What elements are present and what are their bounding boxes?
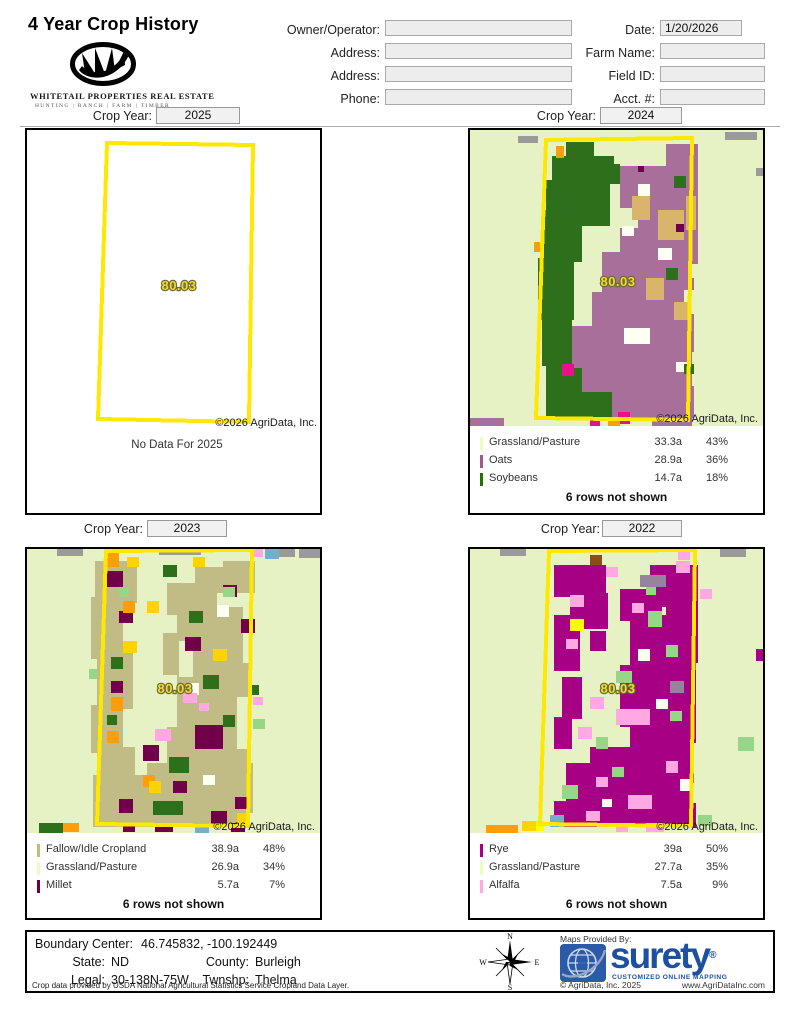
legend-label: Fallow/Idle Cropland	[46, 843, 146, 855]
surety-website[interactable]: www.AgriDataInc.com	[625, 980, 765, 990]
legend-label: Grassland/Pasture	[489, 861, 580, 873]
legend-swatch	[480, 473, 483, 486]
legend-percent: 36%	[686, 454, 728, 466]
date-input[interactable]	[660, 20, 742, 36]
crop-year-label-2024: Crop Year:	[494, 109, 596, 123]
legend-percent: 18%	[686, 472, 728, 484]
compass-s: S	[508, 983, 512, 990]
legend-swatch	[480, 437, 483, 450]
crop-map-2023: 80.03 ©2026 AgriData, Inc.	[27, 549, 320, 833]
report-footer-box: Boundary Center: 46.745832, -100.192449 …	[25, 930, 775, 993]
address2-label: Address:	[242, 69, 380, 83]
field-id-label: Field ID:	[517, 69, 655, 83]
phone-label: Phone:	[242, 92, 380, 106]
parcel-acreage-label: 80.03	[600, 681, 635, 696]
legend-acres: 38.9a	[167, 843, 239, 855]
logo-name: WHITETAIL PROPERTIES REAL ESTATE	[30, 91, 175, 101]
legend-percent: 34%	[243, 861, 285, 873]
legend-swatch	[37, 862, 40, 875]
compass-w: W	[479, 958, 487, 967]
panel-2022: 80.03 ©2026 AgriData, Inc. Rye 39a 50% G…	[468, 547, 765, 920]
crop-year-label-2022: Crop Year:	[498, 522, 600, 536]
legend-acres: 7.5a	[610, 879, 682, 891]
whitetail-logo: WHITETAIL PROPERTIES REAL ESTATE HUNTING…	[30, 42, 175, 109]
acct-label: Acct. #:	[517, 92, 655, 106]
owner-operator-label: Owner/Operator:	[242, 23, 380, 37]
map-copyright: ©2026 AgriData, Inc.	[213, 821, 315, 833]
parcel-acreage-label: 80.03	[157, 681, 192, 696]
farm-name-label: Farm Name:	[517, 46, 655, 60]
legend-percent: 50%	[686, 843, 728, 855]
legend-swatch	[480, 455, 483, 468]
legend-2022: Rye 39a 50% Grassland/Pasture 27.7a 35% …	[470, 833, 763, 918]
legend-row: Grassland/Pasture 27.7a 35%	[470, 861, 763, 877]
report-title: 4 Year Crop History	[28, 14, 199, 35]
legend-label: Rye	[489, 843, 509, 855]
panel-2023: 80.03 ©2026 AgriData, Inc. Fallow/Idle C…	[25, 547, 322, 920]
legend-row: Fallow/Idle Cropland 38.9a 48%	[27, 843, 320, 859]
state-label: State:	[35, 955, 105, 969]
data-source-note: Crop data provided by USDA National Agri…	[32, 981, 349, 990]
legend-acres: 33.3a	[610, 436, 682, 448]
legend-percent: 35%	[686, 861, 728, 873]
legend-percent: 7%	[243, 879, 285, 891]
header-divider	[20, 126, 780, 127]
legend-2023: Fallow/Idle Cropland 38.9a 48% Grassland…	[27, 833, 320, 918]
legend-row: Millet 5.7a 7%	[27, 879, 320, 895]
legend-row: Grassland/Pasture 33.3a 43%	[470, 436, 763, 452]
crop-year-label-2023: Crop Year:	[41, 522, 143, 536]
boundary-center-value: 46.745832, -100.192449	[141, 937, 277, 951]
legend-label: Soybeans	[489, 472, 538, 484]
rows-not-shown: 6 rows not shown	[470, 490, 763, 504]
parcel-acreage-label: 80.03	[161, 278, 196, 293]
legend-row: Alfalfa 7.5a 9%	[470, 879, 763, 895]
legend-acres: 28.9a	[610, 454, 682, 466]
crop-map-2022: 80.03 ©2026 AgriData, Inc.	[470, 549, 763, 833]
legend-percent: 43%	[686, 436, 728, 448]
acct-input[interactable]	[660, 89, 765, 105]
legend-row: Grassland/Pasture 26.9a 34%	[27, 861, 320, 877]
legend-acres: 5.7a	[167, 879, 239, 891]
parcel-acreage-label: 80.03	[600, 274, 635, 289]
legend-acres: 27.7a	[610, 861, 682, 873]
legend-label: Grassland/Pasture	[489, 436, 580, 448]
map-copyright: ©2026 AgriData, Inc.	[656, 413, 758, 425]
panel-2024: 80.03 ©2026 AgriData, Inc. Grassland/Pas…	[468, 128, 765, 515]
legend-label: Oats	[489, 454, 512, 466]
county-value: Burleigh	[255, 955, 301, 969]
legend-acres: 14.7a	[610, 472, 682, 484]
legend-label: Millet	[46, 879, 72, 891]
crop-map-2024: 80.03 ©2026 AgriData, Inc.	[470, 130, 763, 426]
crop-year-label-2025: Crop Year:	[50, 109, 152, 123]
surety-reg-mark: ®	[709, 950, 714, 961]
farm-name-input[interactable]	[660, 43, 765, 59]
rows-not-shown: 6 rows not shown	[27, 897, 320, 911]
surety-brand: surety®	[610, 939, 714, 973]
legend-swatch	[37, 880, 40, 893]
panel-2025: 80.03 ©2026 AgriData, Inc. No Data For 2…	[25, 128, 322, 515]
map-copyright: ©2026 AgriData, Inc.	[656, 821, 758, 833]
crop-year-input-2024[interactable]: 2024	[600, 107, 682, 124]
compass-n: N	[507, 933, 513, 941]
legend-row: Rye 39a 50%	[470, 843, 763, 859]
boundary-center-label: Boundary Center:	[35, 937, 133, 951]
legend-row: Oats 28.9a 36%	[470, 454, 763, 470]
legend-2024: Grassland/Pasture 33.3a 43% Oats 28.9a 3…	[470, 426, 763, 513]
no-data-text: No Data For 2025	[131, 439, 222, 451]
surety-globe-icon	[560, 944, 606, 982]
surety-brand-text: surety	[610, 935, 709, 976]
legend-swatch	[37, 844, 40, 857]
date-label: Date:	[517, 23, 655, 37]
crop-year-input-2022[interactable]: 2022	[602, 520, 682, 537]
legend-percent: 9%	[686, 879, 728, 891]
crop-year-input-2023[interactable]: 2023	[147, 520, 227, 537]
legend-acres: 39a	[610, 843, 682, 855]
legend-label: Grassland/Pasture	[46, 861, 137, 873]
map-copyright: ©2026 AgriData, Inc.	[215, 417, 317, 429]
compass-rose-icon: N S W E	[479, 933, 541, 990]
state-value: ND	[111, 955, 129, 969]
legend-swatch	[480, 880, 483, 893]
legend-swatch	[480, 844, 483, 857]
legend-label: Alfalfa	[489, 879, 520, 891]
county-label: County:	[169, 955, 249, 969]
legend-swatch	[480, 862, 483, 875]
rows-not-shown: 6 rows not shown	[470, 897, 763, 911]
address1-label: Address:	[242, 46, 380, 60]
crop-history-report: 4 Year Crop History WHITETAIL PROPERTIES…	[0, 0, 800, 1035]
compass-e: E	[535, 958, 540, 967]
field-id-input[interactable]	[660, 66, 765, 82]
antler-icon	[70, 42, 136, 86]
legend-acres: 26.9a	[167, 861, 239, 873]
crop-map-2025: 80.03 ©2026 AgriData, Inc. No Data For 2…	[27, 130, 320, 513]
crop-year-input-2025[interactable]: 2025	[156, 107, 240, 124]
legend-row: Soybeans 14.7a 18%	[470, 472, 763, 488]
legend-percent: 48%	[243, 843, 285, 855]
